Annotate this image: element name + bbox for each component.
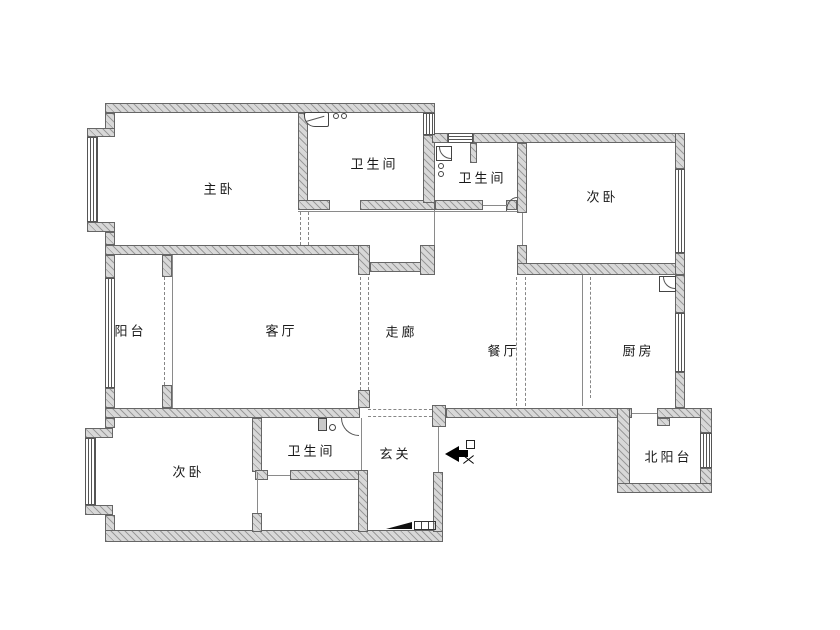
wall-segment [105,418,115,428]
room-label-dining-room: 餐厅 [484,341,519,360]
room-label-north-balcony: 北阳台 [641,447,692,466]
wall-segment [105,232,115,245]
wall-segment [85,428,113,438]
sink-icon [304,112,329,127]
room-label-corridor: 走廊 [382,322,417,341]
door-opening-dashed [368,277,369,390]
wall-segment [290,470,368,480]
window [87,137,98,222]
room-edge-line [298,211,517,212]
wall-segment [105,388,115,408]
door-opening-line [522,213,523,245]
room-edge-line [582,275,583,406]
floor-plan: 主卧 卫生间 卫生间 次卧 阳台 客厅 走廊 餐厅 厨房 次卧 卫生间 玄关 北… [0,0,840,630]
room-edge-line [434,210,435,245]
door-opening-line [268,475,290,476]
wall-segment [420,245,435,275]
sink-basin-line [306,116,325,122]
door-opening-dashed [308,212,309,245]
entrance-arrow-icon [445,446,459,462]
wall-segment [517,143,527,213]
wall-segment [298,200,330,210]
door-opening-dashed [590,277,591,398]
room-label-bedroom-southwest: 次卧 [169,462,204,481]
door-opening-dashed [525,277,526,406]
shoe-cabinet-icon [414,521,436,530]
door-opening-dashed [360,277,361,390]
toilet-icon [329,424,336,431]
wall-segment [473,133,685,143]
faucet-dot-icon [333,113,339,119]
wall-segment [675,275,685,313]
wall-segment [87,222,115,232]
window [675,313,685,372]
corner-basin-icon [659,276,676,292]
wall-segment [105,255,115,278]
wall-segment [105,245,370,255]
room-label-entry-hall: 玄关 [376,444,411,463]
door-opening-line [483,205,508,206]
wall-segment [105,103,435,113]
room-label-bedroom-northeast: 次卧 [583,187,618,206]
door-opening-dashed [164,277,165,385]
wall-segment [358,245,370,275]
wall-segment [252,513,262,532]
wall-segment [675,133,685,169]
door-opening-dashed [300,212,301,245]
wall-segment [105,530,443,542]
window [85,438,96,505]
faucet-dot-icon [438,171,444,177]
wall-segment [435,200,483,210]
wall-cabinet-icon [318,418,327,431]
wall-segment [87,128,115,137]
room-label-bathroom-south: 卫生间 [284,441,335,460]
door-opening-line [257,472,258,513]
wall-segment [105,408,360,418]
basin-arc [663,277,675,289]
faucet-dot-icon [341,113,347,119]
wall-segment [162,385,172,408]
wall-segment [358,390,370,408]
door-opening-line [632,413,657,414]
wall-segment [85,505,113,515]
door-opening-dashed [368,409,432,410]
room-label-living-room: 客厅 [262,321,297,340]
wall-segment [675,372,685,408]
window [423,113,435,135]
wall-segment [470,143,477,163]
faucet-dot-icon [438,163,444,169]
wall-segment [446,408,632,418]
wall-segment [252,418,262,472]
wall-segment [298,113,308,203]
window [675,169,685,253]
wall-segment [432,405,446,427]
wall-segment [370,262,422,272]
entry-door-opening-line [438,427,439,472]
wall-segment [617,483,712,493]
window [448,133,473,143]
room-label-kitchen: 厨房 [619,341,654,360]
wall-segment [675,253,685,275]
wall-segment [657,418,670,426]
room-edge-line [172,255,173,408]
basin-arc [439,147,451,159]
wall-segment [617,408,630,493]
room-edge-line [361,418,362,470]
corner-basin-icon [436,146,452,161]
room-label-bathroom-mid: 卫生间 [455,168,506,187]
wall-segment [423,135,435,203]
room-label-bathroom-top: 卫生间 [347,154,398,173]
wall-segment [162,255,172,277]
door-swing-arc [341,418,359,436]
wall-segment [358,470,368,532]
room-label-balcony: 阳台 [111,321,146,340]
entry-door-symbol-icon [466,440,475,449]
window [700,433,712,468]
door-opening-dashed [368,416,432,417]
wall-segment [517,263,685,275]
room-label-master-bedroom: 主卧 [200,179,235,198]
entry-door-leaf-icon [386,522,412,529]
wall-segment [700,408,712,433]
